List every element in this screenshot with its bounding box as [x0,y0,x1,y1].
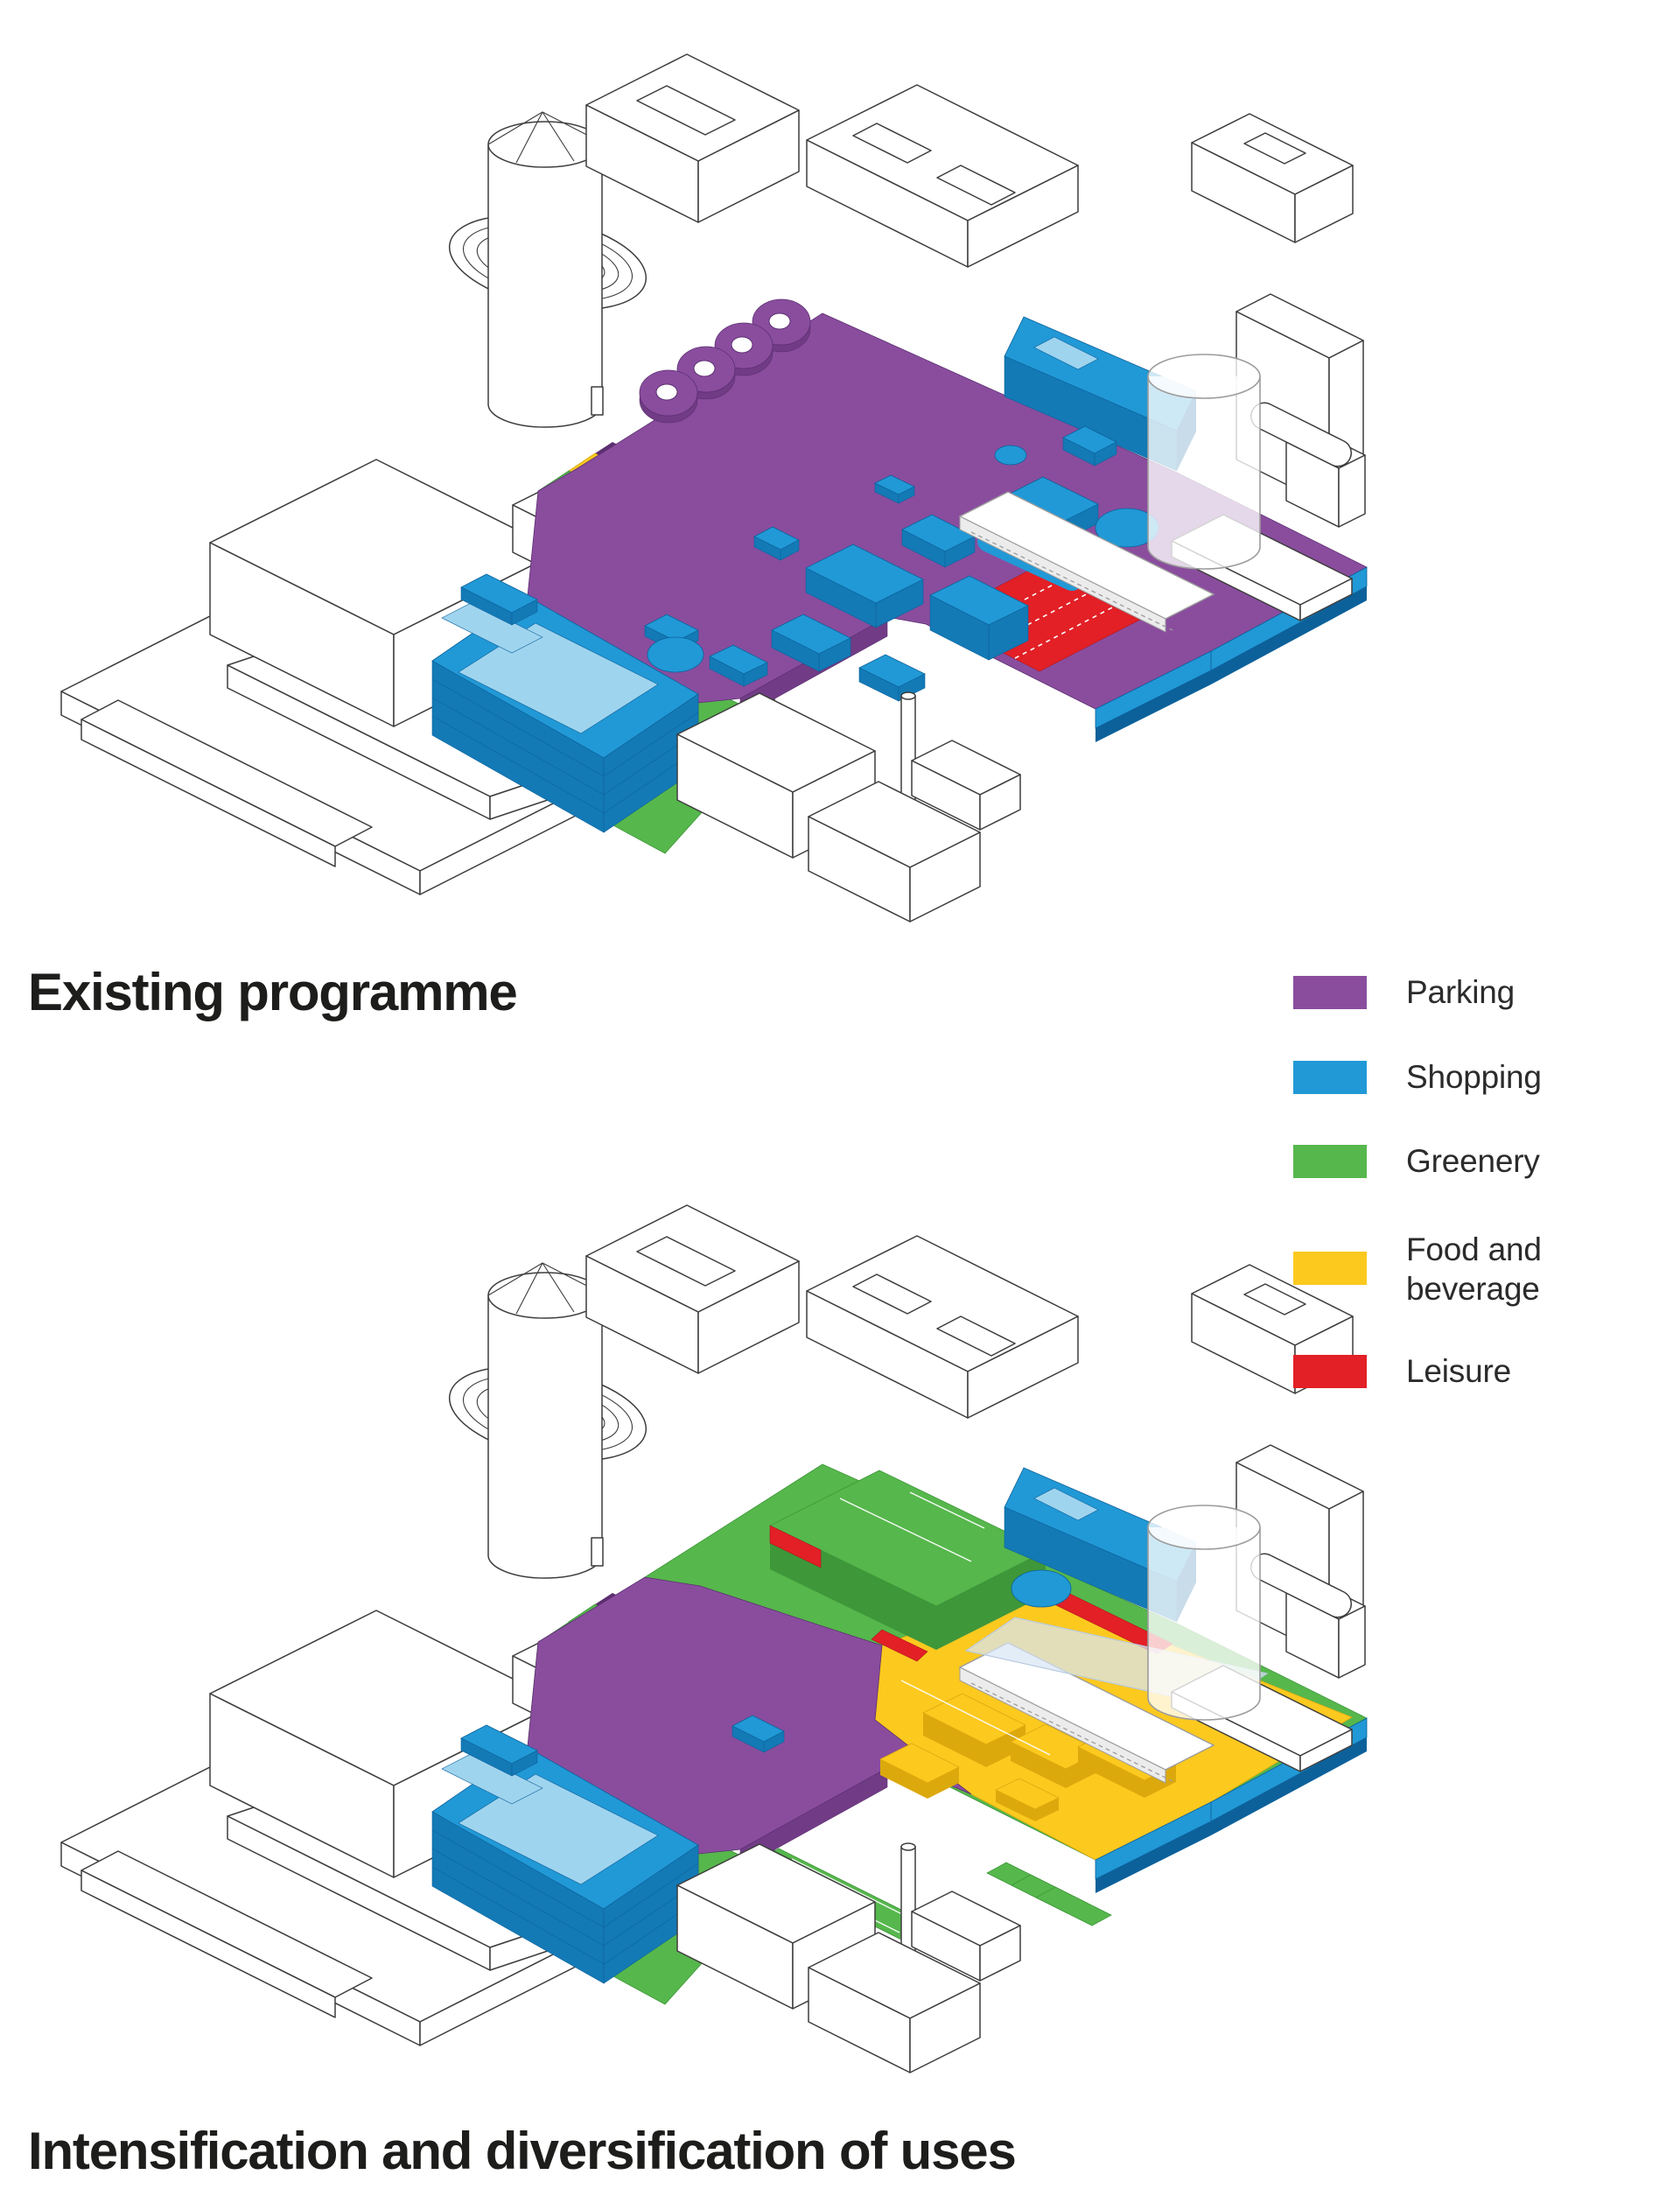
section-title-existing: Existing programme [28,965,517,1020]
legend: Parking Shopping Greenery Food and bever… [1293,974,1661,1412]
scene-proposed [61,1205,1367,2073]
legend-label: Leisure [1406,1351,1511,1391]
legend-swatch-shopping [1293,1061,1367,1094]
legend-label: Greenery [1406,1141,1540,1181]
legend-swatch-greenery [1293,1145,1367,1178]
legend-swatch-parking [1293,976,1367,1009]
section-title-proposed: Intensification and diversification of u… [28,2123,1016,2178]
legend-label: Food and beverage [1406,1230,1542,1308]
legend-label: Parking [1406,972,1515,1012]
scene-existing [61,54,1367,922]
parking-ramp-loop [640,370,697,423]
legend-swatch-food [1293,1252,1367,1285]
foreground-buildings [677,1843,1020,2073]
foreground-buildings [677,692,1020,922]
legend-swatch-leisure [1293,1355,1367,1388]
pond [1011,1570,1071,1607]
figure: Existing programme Intensification and d… [0,0,1680,2206]
legend-label: Shopping [1406,1057,1542,1097]
